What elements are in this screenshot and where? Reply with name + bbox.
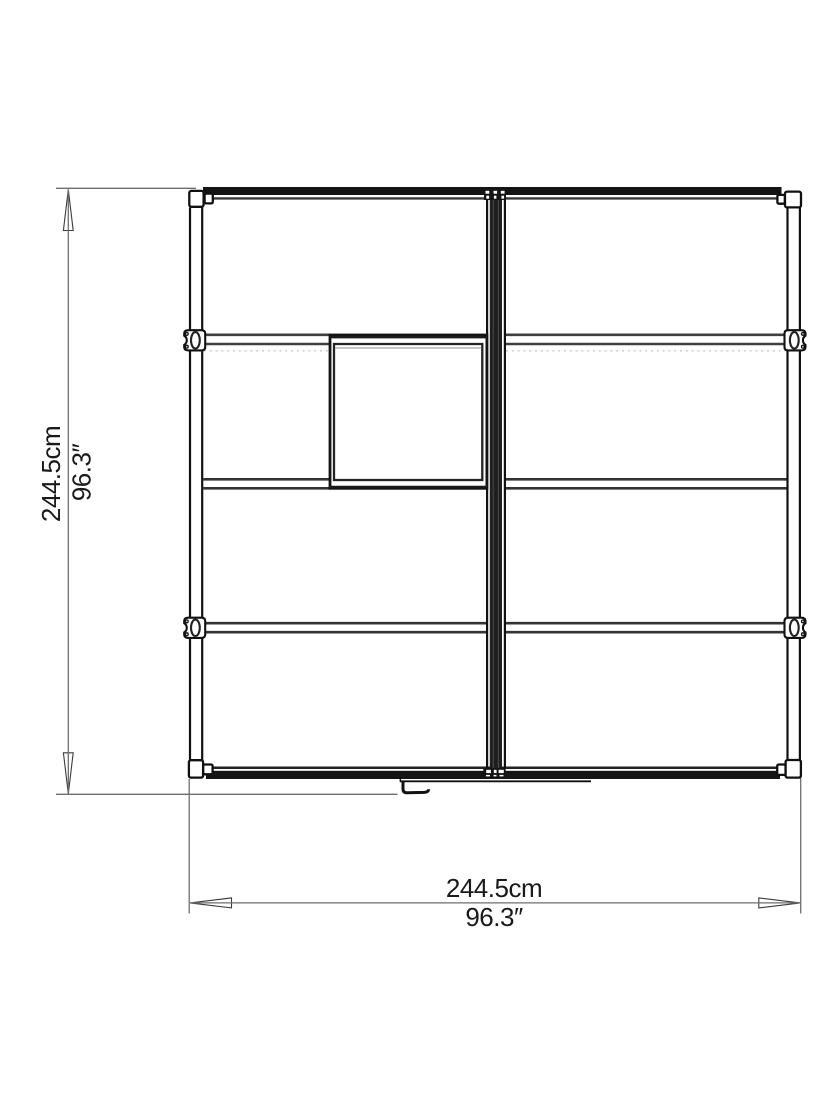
svg-text:244.5cm: 244.5cm: [36, 426, 66, 522]
svg-text:96.3″: 96.3″: [465, 902, 523, 932]
svg-text:244.5cm: 244.5cm: [446, 873, 542, 903]
svg-text:96.3″: 96.3″: [67, 444, 97, 502]
